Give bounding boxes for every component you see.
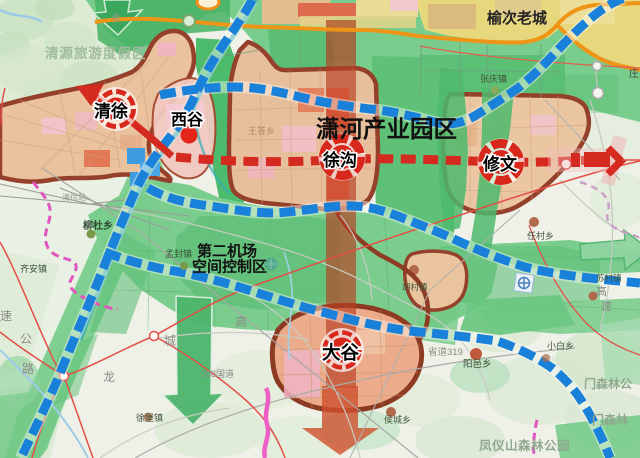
svg-text:门森林: 门森林 (592, 412, 628, 427)
svg-text:第二机场: 第二机场 (197, 242, 257, 260)
svg-text:清源旅游度假区: 清源旅游度假区 (45, 45, 147, 61)
svg-text:龙: 龙 (103, 370, 115, 384)
svg-text:小白乡: 小白乡 (547, 340, 574, 351)
svg-text:侯城乡: 侯城乡 (384, 414, 411, 425)
svg-text:庄: 庄 (629, 67, 639, 80)
svg-text:苏村镇: 苏村镇 (596, 273, 622, 283)
svg-text:清徐: 清徐 (94, 101, 128, 121)
svg-text:路: 路 (22, 361, 34, 376)
svg-text:公: 公 (20, 332, 32, 346)
svg-text:西谷: 西谷 (171, 111, 204, 129)
svg-text:齐安镇: 齐安镇 (20, 263, 47, 274)
svg-text:高: 高 (596, 284, 607, 298)
svg-text:潇河产业园区: 潇河产业园区 (316, 115, 457, 142)
svg-text:徐堡镇: 徐堡镇 (136, 412, 163, 423)
svg-text:城: 城 (164, 334, 176, 348)
svg-text:张庆镇: 张庆镇 (480, 73, 507, 84)
svg-text:道: 道 (112, 12, 120, 22)
svg-text:胡村镇: 胡村镇 (402, 282, 428, 292)
svg-text:速: 速 (601, 300, 612, 313)
svg-text:榆次老城: 榆次老城 (487, 9, 547, 27)
svg-text:清徐站: 清徐站 (62, 192, 86, 202)
svg-text:大谷: 大谷 (322, 342, 360, 363)
svg-text:阳邑乡: 阳邑乡 (463, 359, 492, 370)
svg-text:徐沟: 徐沟 (322, 150, 357, 170)
svg-text:速: 速 (0, 309, 12, 323)
svg-text:任村乡: 任村乡 (527, 230, 554, 241)
svg-text:凤仪山森林公园: 凤仪山森林公园 (479, 438, 570, 453)
svg-text:高: 高 (235, 314, 247, 329)
svg-text:门森林公: 门森林公 (584, 376, 632, 391)
svg-text:208国道: 208国道 (201, 368, 234, 379)
svg-text:柳杜乡: 柳杜乡 (83, 219, 113, 232)
svg-text:修文: 修文 (482, 154, 518, 174)
svg-text:王答乡: 王答乡 (248, 125, 275, 136)
svg-text:孟封镇: 孟封镇 (165, 248, 192, 259)
svg-text:空间控制区: 空间控制区 (192, 258, 267, 276)
svg-text:省道319: 省道319 (428, 346, 463, 358)
